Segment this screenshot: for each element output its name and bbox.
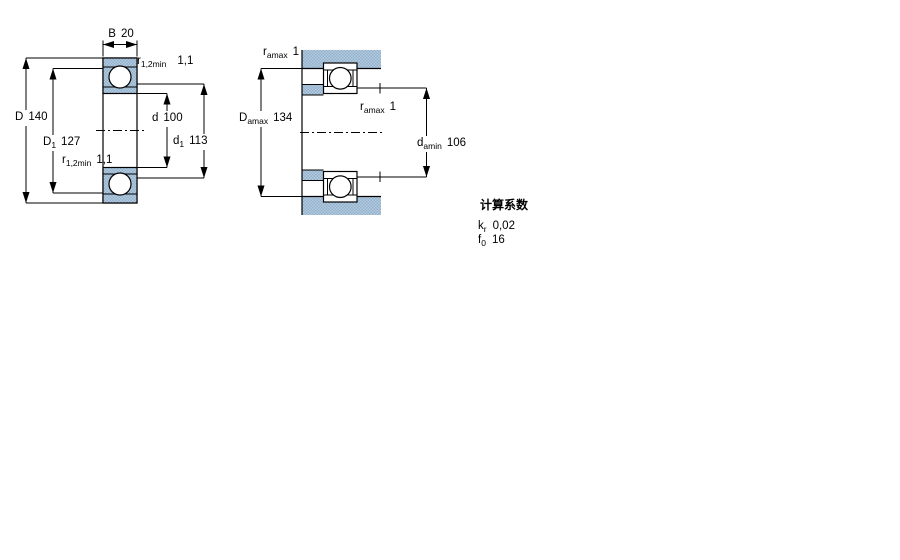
dim-label-D: D140	[13, 110, 50, 126]
dim-value-damin: 106	[447, 137, 466, 149]
dim-symbol-d: d	[152, 112, 158, 124]
ball-top	[330, 68, 352, 90]
ball-bottom	[330, 176, 352, 198]
dim-line-D	[26, 58, 103, 203]
dim-label-ramax-top: ramax1	[263, 45, 299, 61]
dim-value-d1: 113	[189, 135, 207, 147]
dim-label-d: d100	[150, 111, 185, 127]
dim-line-d	[137, 94, 167, 168]
factor-value-f0: 16	[492, 234, 505, 246]
calculation-factors-title: 计算系数	[480, 198, 528, 213]
dim-label-damin: damin106	[415, 136, 468, 152]
dim-label-ramax-mid: ramax1	[360, 100, 396, 116]
dim-value-D: 140	[28, 111, 47, 123]
right-mounted-bearing	[300, 50, 384, 215]
dim-value-r-bottom: 1,1	[96, 154, 112, 166]
dim-symbol-D: D	[15, 111, 23, 123]
dim-label-r-bottom: r1,2min1,1	[62, 153, 112, 169]
dim-label-D1: D1127	[41, 135, 82, 151]
ball-top	[109, 66, 131, 88]
calc-factor-f0: f016	[478, 234, 505, 248]
mounted-bearing-bottom	[324, 172, 358, 203]
dim-line-d1	[137, 84, 204, 178]
dim-label-B: B20	[104, 27, 138, 43]
bottom-ring-assembly	[103, 168, 137, 204]
calc-factor-kr: kr0,02	[478, 220, 515, 234]
ball-bottom	[109, 173, 131, 195]
dim-symbol-B: B	[108, 28, 116, 40]
dim-label-Damax: Damax134	[237, 111, 294, 127]
left-bearing-section	[96, 58, 144, 203]
bearing-dimension-drawing: B20 r1,2min1,1 D140 D1127 d100 d1113 r1,…	[0, 0, 900, 560]
mounted-bearing-top	[324, 63, 358, 94]
dim-value-r-top: 1,1	[177, 55, 193, 67]
dim-value-Damax: 134	[273, 112, 292, 124]
dim-label-r-top: r1,2min1,1	[137, 54, 193, 70]
dim-label-d1: d1113	[171, 134, 209, 150]
factor-value-kr: 0,02	[493, 220, 515, 232]
top-ring-assembly	[103, 58, 137, 94]
drawing-canvas	[0, 0, 900, 560]
dim-value-ramax-mid: 1	[390, 101, 396, 113]
dim-line-D1	[53, 69, 103, 194]
dim-value-D1: 127	[61, 136, 80, 148]
dim-line-B	[103, 41, 137, 57]
dim-value-B: 20	[121, 28, 134, 40]
dim-line-damin	[357, 83, 427, 182]
dim-value-ramax-top: 1	[293, 46, 299, 58]
dim-value-d: 100	[163, 112, 182, 124]
dim-line-Damax	[261, 69, 302, 197]
